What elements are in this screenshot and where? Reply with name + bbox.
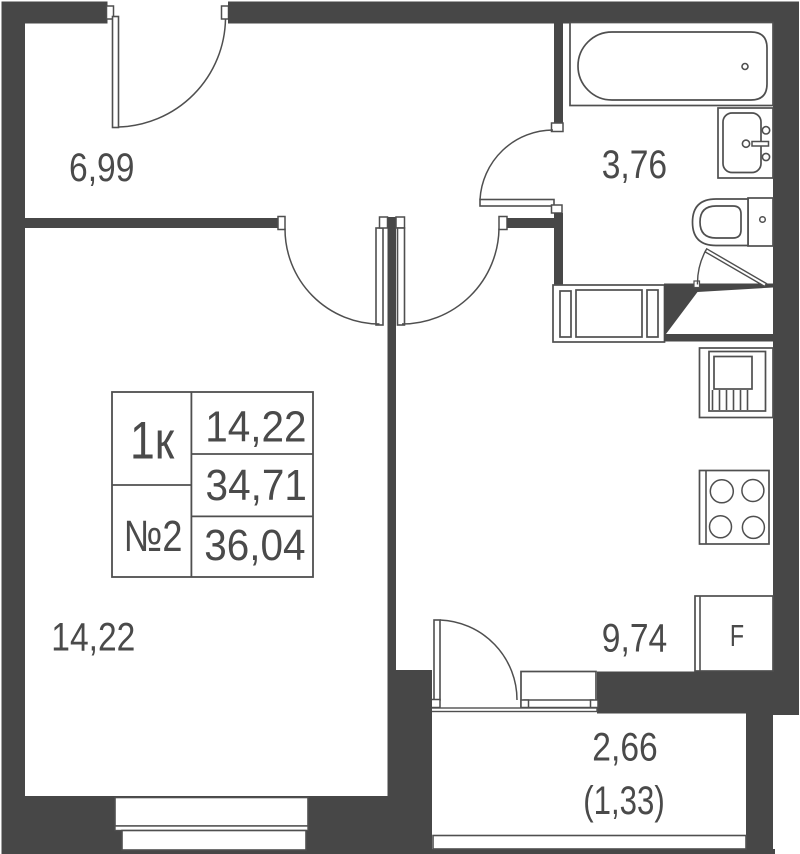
svg-text:3,76: 3,76 (602, 142, 667, 186)
svg-text:№2: №2 (124, 512, 183, 561)
svg-text:F: F (730, 618, 744, 653)
svg-text:1к: 1к (130, 412, 175, 470)
svg-text:(1,33): (1,33) (583, 778, 664, 823)
svg-text:14,22: 14,22 (51, 615, 135, 659)
svg-text:6,99: 6,99 (69, 145, 134, 189)
svg-text:9,74: 9,74 (602, 616, 667, 660)
svg-text:2,66: 2,66 (592, 725, 657, 769)
svg-text:14,22: 14,22 (205, 402, 306, 451)
svg-text:36,04: 36,04 (204, 520, 305, 569)
svg-text:34,71: 34,71 (206, 460, 307, 509)
